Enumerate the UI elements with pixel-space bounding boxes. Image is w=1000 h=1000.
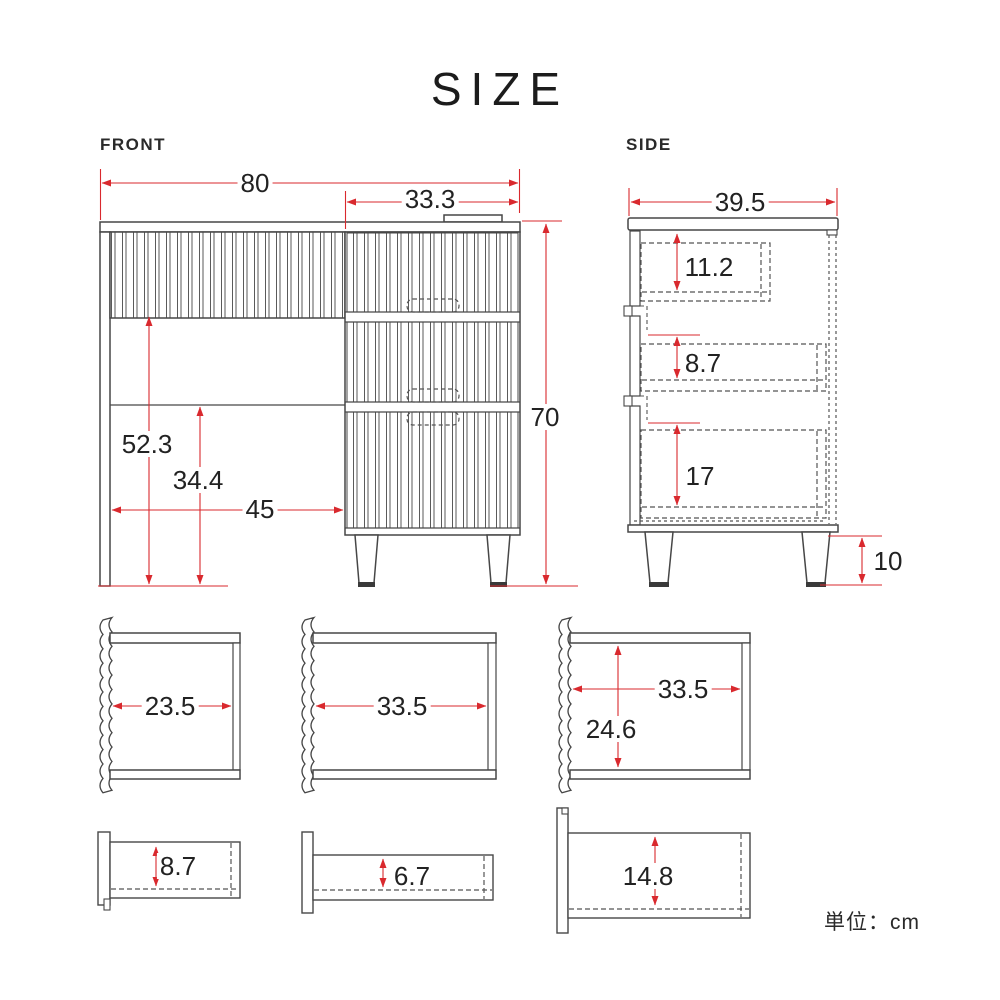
technical-drawing <box>0 0 1000 1000</box>
dim-side-drawer3: 17 <box>683 463 718 489</box>
dim-front-chest-width: 33.3 <box>402 186 459 212</box>
dim-compartment-c-width: 33.5 <box>655 676 712 702</box>
dim-front-knee-width: 45 <box>243 496 278 522</box>
dim-front-clearance-height: 52.3 <box>119 431 176 457</box>
dim-compartment-c-height: 24.6 <box>583 716 640 742</box>
dim-side-drawer2: 8.7 <box>682 350 724 376</box>
dim-side-drawer1: 11.2 <box>682 254 737 280</box>
dim-drawer-c-depth: 14.8 <box>620 863 677 889</box>
dim-compartment-a-width: 23.5 <box>142 693 199 719</box>
dim-compartment-b-width: 33.5 <box>374 693 431 719</box>
side-drawer-dashes <box>641 243 826 518</box>
dim-side-depth: 39.5 <box>712 189 769 215</box>
dim-front-crossbar-height: 34.4 <box>170 467 227 493</box>
dim-drawer-a-depth: 8.7 <box>157 853 199 879</box>
front-view-linework <box>100 215 520 587</box>
dim-drawer-b-depth: 6.7 <box>391 863 433 889</box>
dim-front-total-width: 80 <box>238 170 273 196</box>
dim-front-total-height: 70 <box>528 404 563 430</box>
dim-side-leg-height: 10 <box>871 548 906 574</box>
unit-note: 単位：cm <box>824 906 920 936</box>
size-diagram-page: SIZE FRONT SIDE <box>0 0 1000 1000</box>
